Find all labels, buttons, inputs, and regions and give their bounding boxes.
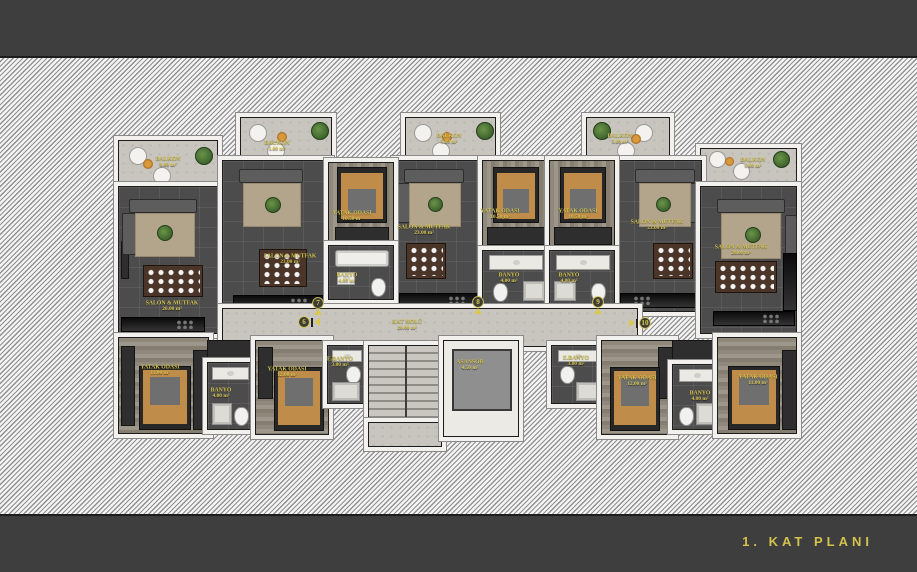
room-label: YATAK ODASI10.50 m² <box>332 210 371 222</box>
room-salon-unit9 <box>613 160 702 312</box>
room-area: 20.00 m² <box>392 325 422 331</box>
room-label: YATAK ODASI10.50 m² <box>558 208 597 220</box>
room-label: BALKON6.00 m² <box>156 156 181 168</box>
room-area: 4.00 m² <box>499 278 520 284</box>
door-mark <box>311 318 313 327</box>
room-area: 4.50 m² <box>456 365 484 371</box>
flower-pot <box>143 159 153 169</box>
bottom-band: 1. KAT PLANI <box>0 514 917 572</box>
room-bedroom-unit6 <box>118 337 209 434</box>
room-label: BANYO4.00 m² <box>337 272 358 284</box>
plant <box>476 122 494 140</box>
room-bedroom-unit7 <box>328 162 394 247</box>
elevator-shaft <box>443 340 519 437</box>
room-label: ASANSÖR4.50 m² <box>456 359 484 371</box>
unit-marker-7: 7 <box>312 297 324 309</box>
room-area: 3.00 m² <box>327 362 353 368</box>
page: 1. KAT PLANI <box>0 0 917 572</box>
kitchen-counter <box>783 253 797 311</box>
sofa <box>239 169 303 183</box>
room-salon-unit8 <box>395 160 484 312</box>
room-area: 5.00 m² <box>437 139 462 145</box>
room-label: SALON & MUTFAK23.00 m² <box>398 224 451 236</box>
room-area: 5.00 m² <box>265 146 290 152</box>
toilet <box>560 366 575 384</box>
room-label: YATAK ODASI11.00 m² <box>738 374 777 386</box>
cooktop <box>448 296 466 305</box>
coffee-table-plant <box>157 225 173 241</box>
room-label: SALON & MUTFAK26.00 m² <box>146 300 199 312</box>
room-area: 10.50 m² <box>332 216 371 222</box>
room-label: YATAK ODASI12.00 m² <box>267 366 306 378</box>
room-area: 26.00 m² <box>146 306 199 312</box>
room-label: SALON & MUTFAK23.00 m² <box>264 253 317 265</box>
room-area: 12.00 m² <box>617 381 656 387</box>
room-label: BANYO4.00 m² <box>559 272 580 284</box>
closet <box>672 340 719 364</box>
top-band <box>0 0 917 58</box>
table-plates <box>409 246 443 276</box>
cooktop <box>762 314 780 323</box>
floor-plan: BALKON6.00 m² SALON & MUTFAK26.00 m² BAL… <box>108 110 808 460</box>
cooktop <box>633 296 651 305</box>
sink-vanity <box>679 369 716 382</box>
kitchen-counter <box>399 293 479 308</box>
coffee-table-plant <box>428 197 443 212</box>
room-label: SALON & MUTFAK26.00 m² <box>715 244 768 256</box>
room-area: 5.00 m² <box>608 139 633 145</box>
balcony-table <box>414 124 432 142</box>
wardrobe <box>193 350 208 430</box>
dining-table <box>653 243 693 279</box>
room-label: YATAK ODASI10.50 m² <box>480 208 519 220</box>
room-area: 4.00 m² <box>211 393 232 399</box>
sofa <box>404 169 464 183</box>
shower <box>523 281 545 301</box>
shower <box>576 382 600 401</box>
sofa <box>717 199 785 213</box>
balcony-table <box>709 151 726 168</box>
cooktop <box>290 298 308 307</box>
closet <box>207 340 252 362</box>
toilet <box>234 407 249 426</box>
table-plates <box>146 268 200 294</box>
coffee-table-plant <box>265 197 281 213</box>
room-label: YATAK ODASI12.00 m² <box>617 375 656 387</box>
room-area: 23.00 m² <box>631 225 684 231</box>
wardrobe <box>487 227 545 245</box>
room-label: E.BANYO3.00 m² <box>563 355 589 367</box>
entry-arrow-9 <box>594 308 602 314</box>
sink-vanity <box>489 255 543 270</box>
plant <box>195 147 213 165</box>
room-label: E.BANYO3.00 m² <box>327 356 353 368</box>
room-label: BALKON6.00 m² <box>741 157 766 169</box>
plant <box>773 151 790 168</box>
room-label: BANYO4.00 m² <box>499 272 520 284</box>
room-bedroom2-unit7 <box>255 340 329 435</box>
wardrobe <box>658 347 673 399</box>
room-label: SALON & MUTFAK23.00 m² <box>631 219 684 231</box>
cooktop <box>176 320 194 329</box>
unit-marker-6: 6 <box>298 316 310 328</box>
dining-table <box>143 265 203 297</box>
floor-plan-title: 1. KAT PLANI <box>742 534 873 549</box>
stair-landing <box>368 422 442 447</box>
room-area: 26.00 m² <box>715 250 768 256</box>
room-bedroom2-unit9 <box>601 340 674 435</box>
unit-marker-10: 10 <box>639 317 651 329</box>
room-label: YATAK ODASI11.00 m² <box>140 364 179 376</box>
wardrobe <box>121 346 135 426</box>
room-ensuite-bath-unit7 <box>327 345 365 404</box>
room-label: BALKON5.00 m² <box>437 133 462 145</box>
table-plates <box>656 246 690 276</box>
door-mark <box>636 319 638 328</box>
room-area: 4.00 m² <box>559 278 580 284</box>
room-area: 3.00 m² <box>563 361 589 367</box>
balcony-table <box>153 167 171 185</box>
entry-arrow-10 <box>629 319 635 327</box>
entry-arrow-6 <box>314 318 320 326</box>
sink-vanity <box>212 367 249 380</box>
plant <box>311 122 329 140</box>
shower <box>554 281 576 301</box>
room-bedroom-unit9 <box>549 160 615 252</box>
shower <box>696 403 716 425</box>
room-label: BANYO4.00 m² <box>211 387 232 399</box>
wardrobe <box>782 350 797 430</box>
wardrobe <box>554 227 612 245</box>
sofa <box>635 169 695 183</box>
wardrobe <box>335 227 389 243</box>
sink-vanity <box>556 255 610 270</box>
room-area: 23.00 m² <box>264 259 317 265</box>
coffee-table-plant <box>656 197 671 212</box>
stairs <box>368 345 442 422</box>
dining-table <box>715 261 777 293</box>
shower <box>212 403 232 425</box>
kitchen-counter <box>121 317 205 332</box>
entry-arrow-7 <box>314 309 322 315</box>
bathtub <box>335 250 389 267</box>
unit-marker-9: 9 <box>592 296 604 308</box>
room-label: BALKON5.00 m² <box>608 133 633 145</box>
sofa <box>785 215 797 257</box>
room-area: 12.00 m² <box>267 372 306 378</box>
table-plates <box>718 264 774 290</box>
sofa <box>122 213 136 255</box>
room-area: 23.00 m² <box>398 230 451 236</box>
room-label: BALKON5.00 m² <box>265 140 290 152</box>
room-area: 6.00 m² <box>156 162 181 168</box>
sofa <box>129 199 197 213</box>
unit-marker-8: 8 <box>472 296 484 308</box>
room-area: 10.50 m² <box>480 214 519 220</box>
kitchen-counter <box>713 311 795 326</box>
coffee-table-plant <box>745 227 761 243</box>
room-label: KAT HOLÜ20.00 m² <box>392 319 422 331</box>
kitchen-counter <box>620 293 700 308</box>
entry-arrow-8 <box>474 308 482 314</box>
flower-pot <box>725 157 734 166</box>
room-area: 4.00 m² <box>690 396 711 402</box>
dining-table <box>406 243 446 279</box>
room-salon-unit10 <box>700 186 797 334</box>
room-label: BANYO4.00 m² <box>690 390 711 402</box>
room-area: 6.00 m² <box>741 163 766 169</box>
room-salon-unit7 <box>222 160 330 312</box>
room-area: 11.00 m² <box>738 380 777 386</box>
room-bedroom-unit8 <box>482 160 548 252</box>
toilet <box>679 407 694 426</box>
room-area: 4.00 m² <box>337 278 358 284</box>
room-area: 11.00 m² <box>140 370 179 376</box>
shower <box>332 382 360 401</box>
toilet <box>493 283 508 302</box>
toilet <box>371 278 386 297</box>
room-area: 10.50 m² <box>558 214 597 220</box>
